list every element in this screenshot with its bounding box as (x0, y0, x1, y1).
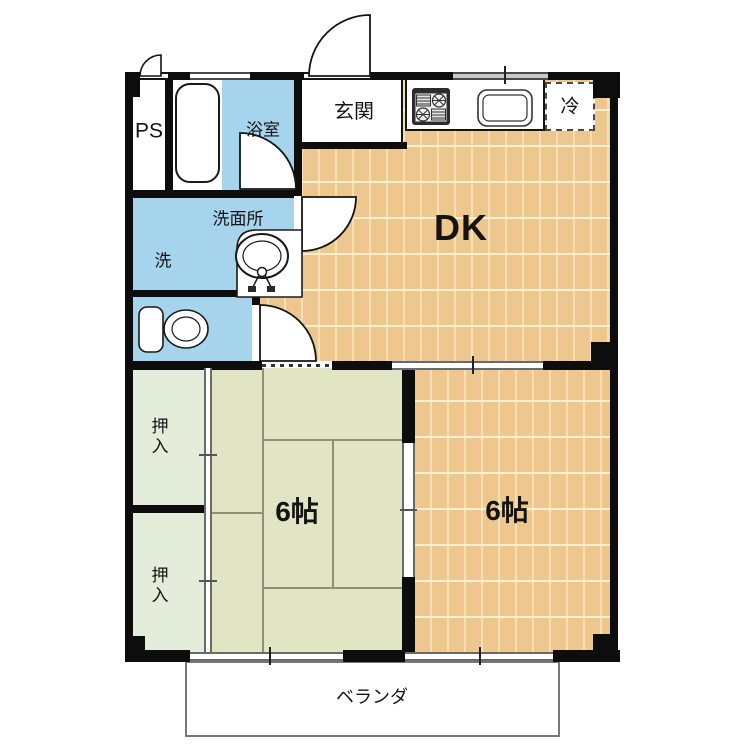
window-handle-tick (472, 356, 474, 374)
sliding-door-dk-western (392, 361, 543, 370)
label-entrance: 玄関 (334, 102, 374, 122)
wall (168, 72, 190, 80)
wall (543, 361, 610, 370)
label-dk: DK (434, 210, 488, 246)
window-handle-tick (400, 509, 417, 511)
bathtub-pad (171, 80, 222, 190)
wall (332, 361, 392, 370)
label-closet-upper: 押入 (150, 417, 167, 457)
kitchen-counter (405, 80, 545, 131)
label-bath: 浴室 (246, 122, 280, 139)
doorway-entrance (304, 72, 370, 80)
wall-entrance-dk (294, 142, 407, 149)
closet-upper (133, 368, 204, 505)
window-tatami-veranda (190, 652, 343, 661)
window-bath (190, 72, 250, 80)
wall-bath-entrance (294, 72, 302, 196)
wall-closet-divider (133, 505, 210, 513)
window-handle-tick (269, 647, 271, 665)
wall-tatami-western (402, 368, 415, 443)
label-closet-lower: 押入 (150, 566, 167, 606)
window-handle-tick (504, 66, 506, 84)
wall (125, 361, 262, 370)
wall-ps-bath (165, 80, 173, 190)
label-washer: 洗 (155, 253, 172, 270)
wall-bath-washroom (125, 190, 302, 198)
window-handle-tick (199, 580, 217, 582)
window-handle-tick (199, 454, 217, 456)
label-veranda: ベランダ (336, 688, 408, 706)
wall-washroom-toilet (125, 290, 302, 297)
window-kitchen (453, 72, 548, 80)
wall-toilet-dk (252, 290, 260, 305)
sliding-door-closet (204, 368, 212, 652)
room-toilet (133, 297, 252, 361)
door-swing-entrance (309, 15, 370, 76)
doorway-washroom (294, 196, 302, 250)
wall (343, 650, 405, 662)
opening-dk-tatami (262, 364, 332, 367)
tatami-line (211, 512, 262, 514)
doorway-ps (140, 72, 168, 80)
doorway-toilet (252, 305, 260, 361)
wall (370, 72, 453, 80)
tatami-line (262, 368, 264, 652)
label-ps: PS (135, 121, 163, 142)
label-western-room: 6帖 (485, 497, 529, 525)
window-handle-tick (479, 647, 481, 665)
label-tatami-room: 6帖 (275, 498, 319, 526)
closet-lower (133, 513, 204, 652)
wall-tatami-western (402, 577, 415, 652)
floor-plan: PS 浴室 玄関 冷 洗面所 洗 DK 6帖 6帖 押入 押入 ベランダ (0, 0, 750, 750)
label-fridge: 冷 (560, 98, 579, 117)
wall (553, 650, 620, 662)
wall (125, 650, 190, 662)
tatami-line (332, 439, 334, 589)
label-washroom: 洗面所 (213, 211, 264, 228)
wall (548, 72, 593, 80)
